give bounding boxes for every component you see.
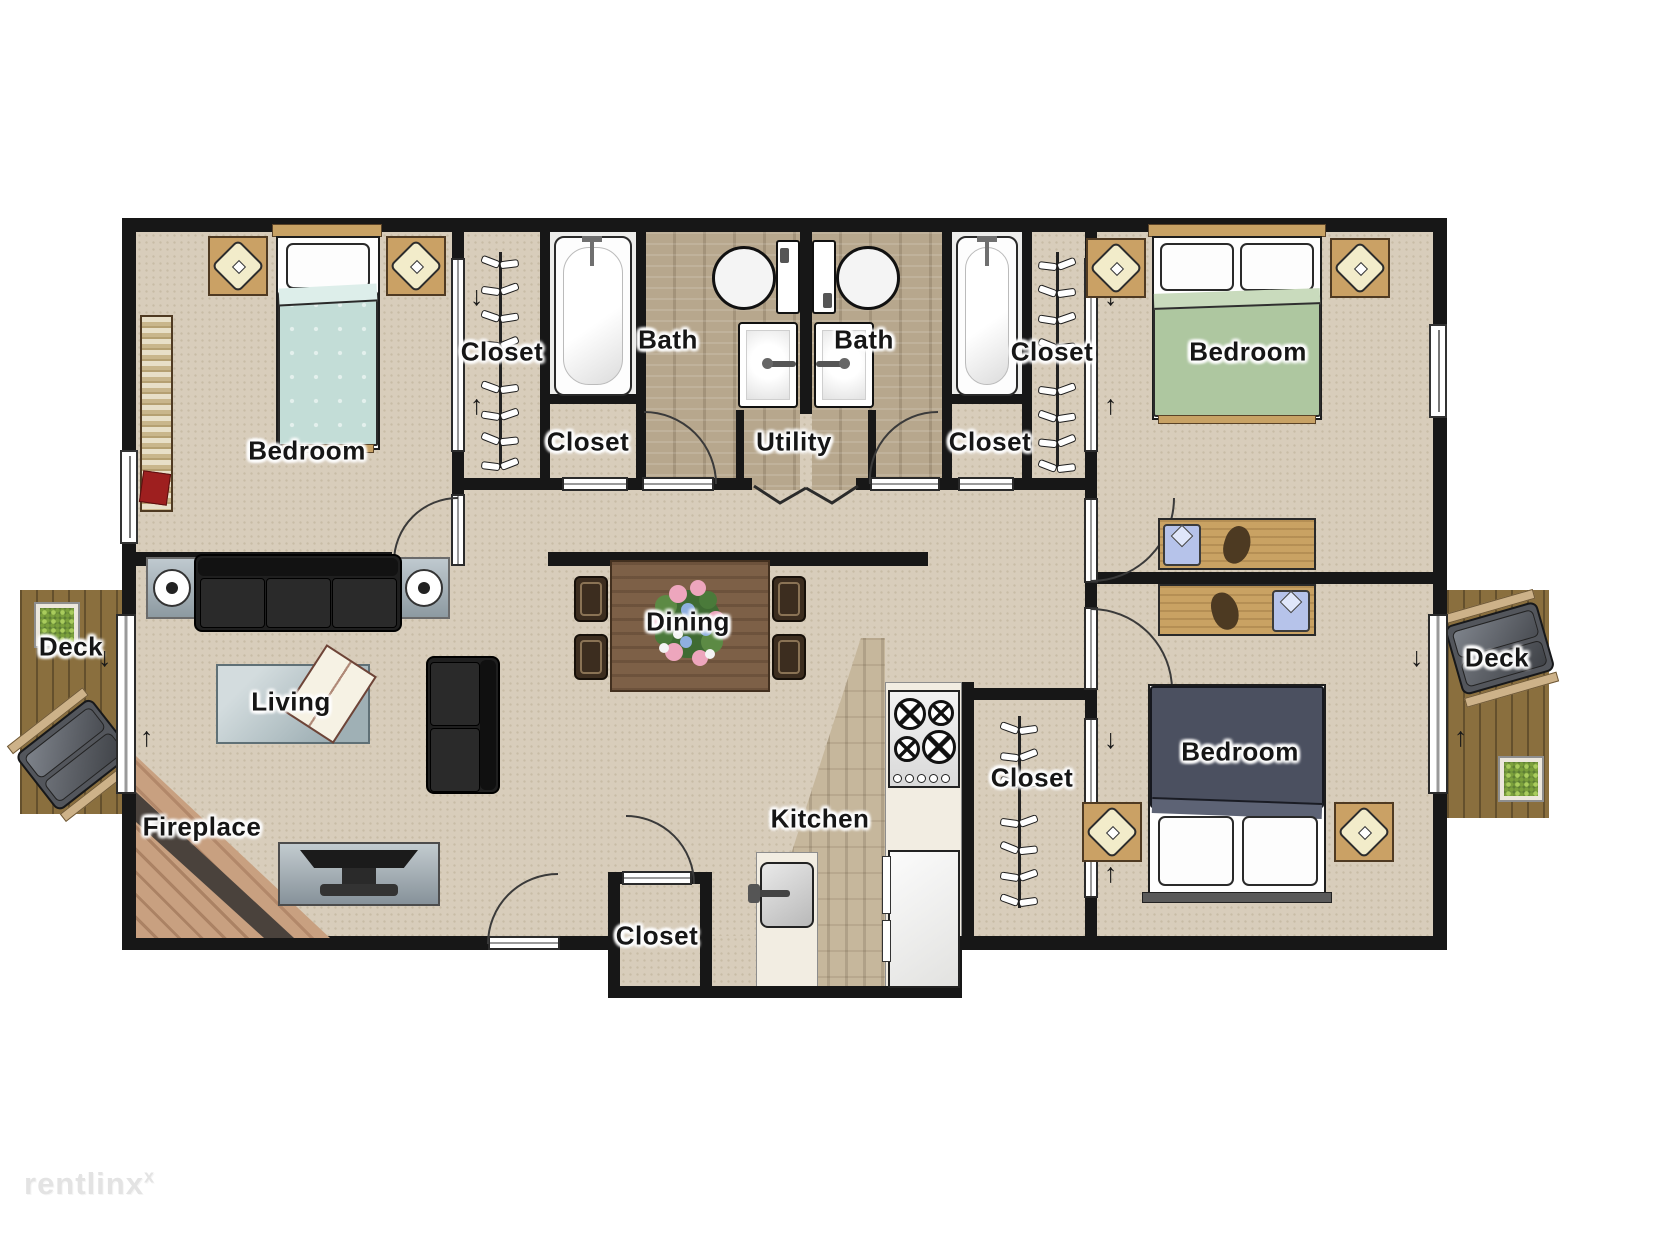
dining-chair [574,576,608,622]
nightstand [1334,802,1394,862]
room-label-dining: Dining [646,607,730,638]
speaker-table-icon [146,557,198,619]
room-label-closet-mid-right: Closet [991,763,1073,794]
desk-chair [1272,590,1310,632]
stove-knob [941,774,950,783]
floor-plan: ↓ ↑ ↓ ↑ [0,0,1680,1260]
arrow-up-icon: ↑ [140,724,154,751]
nightstand [208,236,268,296]
room-label-bath-right: Bath [834,325,894,356]
loveseat-cushion [430,728,480,792]
bathtub-left-faucet-stem [590,236,594,266]
sofa-cushion [266,578,331,628]
arrow-up-icon: ↑ [470,392,484,419]
stove-knob [905,774,914,783]
arrow-up-icon: ↑ [1454,724,1468,751]
arrow-down-icon: ↓ [98,644,112,671]
stove-knob [917,774,926,783]
arrow-down-icon: ↓ [1104,726,1118,753]
desk-chair [1163,524,1201,566]
bed-br-footboard [1142,892,1332,903]
toilet-right [836,246,900,310]
door-arc [644,412,716,484]
bed-tr-pillow [1240,243,1314,291]
room-label-closet-tall-right: Closet [1011,337,1093,368]
sofa-back [198,558,398,576]
room-label-bedroom-br: Bedroom [1181,737,1299,768]
door-arc [394,498,458,562]
refrigerator-handle [882,920,891,962]
room-label-kitchen: Kitchen [771,804,870,835]
bed-tl-blanket [278,291,378,446]
bed-tr-pillow [1160,243,1234,291]
sofa-cushion [332,578,397,628]
arrow-up-icon: ↑ [1104,860,1118,887]
nightstand [1086,238,1146,298]
refrigerator [888,850,960,988]
stove-knob [929,774,938,783]
stove-burner-icon [922,730,956,764]
tv-base [320,884,398,896]
tv-icon [300,850,418,868]
room-label-utility: Utility [756,427,832,458]
bed-br-pillow [1242,816,1318,886]
kitchen-faucet-knob [748,884,760,903]
utility-bifold-door [806,486,858,503]
room-label-deck-right: Deck [1465,643,1529,674]
stove-burner-icon [894,698,926,730]
dining-chair [772,576,806,622]
room-label-closet-bottom: Closet [616,921,698,952]
nightstand [1330,238,1390,298]
room-label-living: Living [251,687,331,718]
toilet-right-button [823,293,832,308]
bathroom-sink-left-knob [762,358,773,369]
bathtub-right-faucet-stem [985,236,989,266]
sofa-cushion [200,578,265,628]
nightstand [1082,802,1142,862]
bed-br-pillow [1158,816,1234,886]
door-arc [870,412,938,484]
utility-bifold-door [754,486,806,503]
dining-chair [772,634,806,680]
room-label-fireplace: Fireplace [143,812,262,843]
arrow-down-icon: ↓ [470,283,484,310]
stove-burner-icon [894,736,920,762]
bed-tr-footboard [1158,415,1316,424]
room-label-bedroom-tl: Bedroom [248,436,366,467]
loveseat-back [480,660,496,790]
dining-chair [574,634,608,680]
arrow-down-icon: ↓ [1410,644,1424,671]
toilet-left [712,246,776,310]
stove-burner-icon [928,700,954,726]
room-label-closet-small-right: Closet [949,427,1031,458]
arrow-up-icon: ↑ [1104,392,1118,419]
loveseat-cushion [430,662,480,726]
room-label-bath-left: Bath [638,325,698,356]
bathroom-sink-right-knob [839,358,850,369]
door-arc [488,874,558,944]
speaker-table-icon [398,557,450,619]
room-label-deck-left: Deck [39,632,103,663]
toilet-left-button [780,248,789,263]
bed-tl-pillow [286,243,370,289]
room-label-closet-tall-left: Closet [461,337,543,368]
room-label-closet-small-left: Closet [547,427,629,458]
door-arc [626,816,694,884]
dresser-red-item [139,470,171,506]
rentlinx-watermark: rentlinxx [24,1166,155,1202]
nightstand [386,236,446,296]
room-label-bedroom-tr: Bedroom [1189,337,1307,368]
tv-stand [342,868,376,884]
stove-knob [893,774,902,783]
refrigerator-handle [882,856,891,914]
